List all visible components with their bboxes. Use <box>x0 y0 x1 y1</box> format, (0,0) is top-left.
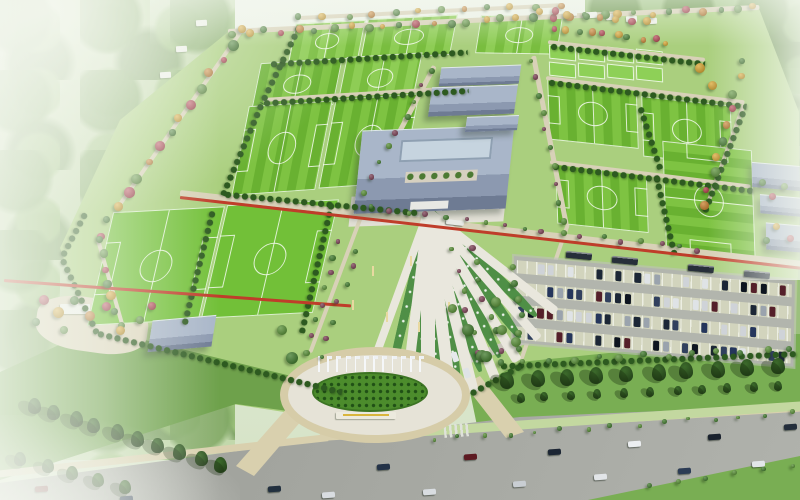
tree <box>682 6 690 14</box>
car <box>628 441 641 448</box>
parked-car <box>654 296 660 307</box>
tree <box>102 267 108 273</box>
tree <box>695 63 705 73</box>
parked-car <box>557 287 563 298</box>
parked-car <box>663 341 669 352</box>
mini-pitch <box>578 63 605 80</box>
tree <box>53 307 64 318</box>
parked-car <box>547 287 553 298</box>
tree <box>761 467 766 472</box>
tree <box>607 423 611 427</box>
tree <box>462 288 467 293</box>
tree <box>148 302 156 310</box>
conifer-tree <box>589 367 603 384</box>
tree <box>497 325 507 335</box>
conifer-tree <box>674 386 682 396</box>
parked-car <box>624 315 630 326</box>
tree <box>666 8 673 15</box>
tree <box>640 351 646 357</box>
tree <box>643 17 651 25</box>
parked-car <box>663 297 669 308</box>
tree <box>515 296 522 303</box>
parked-car <box>750 304 756 315</box>
tree <box>556 200 562 206</box>
tree <box>100 249 109 258</box>
tree <box>562 26 569 33</box>
tree <box>491 297 501 307</box>
tree <box>700 201 708 209</box>
parked-car <box>702 278 708 289</box>
parked-car <box>654 274 660 285</box>
garden-pavilion <box>176 46 187 53</box>
tree <box>329 255 336 262</box>
conifer-tree <box>593 389 601 399</box>
tree <box>599 30 605 36</box>
tree <box>320 303 325 308</box>
tree <box>368 11 375 18</box>
conifer-tree <box>92 473 104 487</box>
penalty-box <box>548 95 561 124</box>
flagpole <box>373 356 375 372</box>
tree <box>345 282 350 287</box>
flagpole <box>336 356 338 372</box>
conifer-tree <box>679 362 693 379</box>
tree <box>699 8 707 16</box>
tree <box>85 311 95 321</box>
conifer-tree <box>531 370 545 387</box>
tree <box>719 7 725 13</box>
flagpole <box>410 356 412 372</box>
tree <box>311 28 317 34</box>
light-pole <box>372 266 374 276</box>
parked-car <box>635 272 641 283</box>
parked-car <box>605 292 611 303</box>
car <box>377 464 390 471</box>
tree <box>712 153 720 161</box>
parked-car <box>683 276 689 287</box>
parked-car <box>614 337 620 348</box>
tree <box>448 20 456 28</box>
tree <box>769 193 776 200</box>
roof-garden <box>405 169 478 183</box>
car <box>268 486 281 493</box>
tree <box>711 167 720 176</box>
parked-car <box>673 320 679 331</box>
conifer-tree <box>723 383 731 393</box>
tree <box>498 359 505 366</box>
tree <box>70 296 79 305</box>
conifer-tree <box>119 480 131 494</box>
tree <box>111 308 118 315</box>
tree <box>481 351 492 362</box>
parked-car <box>586 312 592 323</box>
conifer-tree <box>620 388 628 398</box>
tree <box>533 431 536 434</box>
tree <box>479 296 484 301</box>
tree <box>615 31 623 39</box>
conifer-tree <box>774 381 782 391</box>
parked-car <box>548 264 554 275</box>
parked-car <box>605 314 611 325</box>
tree <box>552 7 560 15</box>
tree <box>448 304 457 313</box>
tree <box>369 204 373 208</box>
parked-car <box>538 264 544 275</box>
tree <box>228 40 239 51</box>
tree <box>589 28 597 36</box>
conifer-tree <box>711 361 725 378</box>
tree <box>511 337 521 347</box>
tree <box>103 280 112 289</box>
parked-car <box>682 342 688 353</box>
tree <box>469 245 475 251</box>
tree <box>558 3 564 9</box>
flagpole <box>382 356 384 372</box>
parked-car <box>673 298 679 309</box>
parked-car <box>595 313 601 324</box>
tree <box>330 320 336 326</box>
tree <box>786 346 792 352</box>
conifer-tree <box>771 358 785 375</box>
tree <box>749 3 756 10</box>
tree <box>708 81 717 90</box>
tree <box>309 333 314 338</box>
tree <box>174 114 182 122</box>
car <box>594 474 607 481</box>
parked-car <box>712 301 718 312</box>
tree <box>476 278 481 283</box>
skylight <box>399 137 493 162</box>
parked-car <box>644 273 650 284</box>
tree <box>449 247 453 251</box>
tree <box>347 14 353 20</box>
light-pole <box>352 300 354 310</box>
tree <box>155 141 165 151</box>
parked-car <box>624 337 630 348</box>
tree <box>529 13 538 22</box>
tree <box>323 336 328 341</box>
tree <box>361 190 367 196</box>
tree <box>484 4 490 10</box>
tree <box>433 438 437 442</box>
training-building <box>752 162 800 191</box>
tree <box>39 295 49 305</box>
garden-pavilion <box>196 20 207 27</box>
tree <box>336 239 341 244</box>
car <box>513 481 526 488</box>
conifer-tree <box>87 418 100 434</box>
tree <box>396 22 401 27</box>
tree <box>318 13 326 21</box>
parked-car <box>780 285 786 296</box>
parked-car <box>596 291 602 302</box>
tree <box>462 6 468 12</box>
car <box>784 424 797 431</box>
parked-car <box>692 299 698 310</box>
tree <box>677 244 681 248</box>
training-building <box>760 194 800 217</box>
tree <box>462 307 468 313</box>
parked-car <box>653 340 659 351</box>
parked-car <box>576 289 582 300</box>
parked-car <box>644 317 650 328</box>
flagpole <box>346 356 348 372</box>
conifer-tree <box>652 364 666 381</box>
parked-car <box>722 280 728 291</box>
parked-car <box>567 288 573 299</box>
tree <box>349 22 355 28</box>
tree <box>571 357 578 364</box>
light-pole <box>418 322 420 332</box>
parked-car <box>750 326 756 337</box>
tree <box>462 324 474 336</box>
tree <box>773 223 780 230</box>
car <box>548 449 561 456</box>
flagpole <box>392 356 394 372</box>
tree <box>489 314 495 320</box>
parked-car <box>615 270 621 281</box>
tree <box>313 317 318 322</box>
parked-car <box>566 332 572 343</box>
tree <box>759 179 766 186</box>
mini-pitch <box>636 65 663 82</box>
tree <box>638 238 644 244</box>
parked-car <box>779 329 785 340</box>
parked-car <box>634 316 640 327</box>
parked-car <box>740 325 746 336</box>
conifer-tree <box>646 387 654 397</box>
tree <box>32 318 40 326</box>
tree <box>628 18 636 26</box>
flagpole <box>419 356 421 372</box>
flagpole <box>355 356 357 372</box>
tree <box>686 417 689 420</box>
conifer-tree <box>517 393 525 403</box>
training-building <box>439 65 522 87</box>
tree <box>277 325 287 335</box>
flagpole <box>364 356 366 372</box>
conifer-tree <box>698 385 706 395</box>
aerial-rendering <box>0 0 800 500</box>
conifer-tree <box>47 405 60 421</box>
tree <box>351 263 356 268</box>
tree <box>787 235 794 242</box>
flagpole <box>401 356 403 372</box>
tree <box>550 14 557 21</box>
tree <box>694 248 700 254</box>
tree <box>641 37 647 43</box>
tree <box>136 316 144 324</box>
parked-car <box>556 331 562 342</box>
tree <box>519 312 525 318</box>
tree <box>114 202 123 211</box>
tree <box>563 11 571 19</box>
tree <box>484 16 491 23</box>
conifer-tree <box>750 382 758 392</box>
light-pole <box>410 256 412 266</box>
tree <box>169 129 175 135</box>
tree <box>660 241 665 246</box>
tree <box>587 427 592 432</box>
flagpole <box>327 356 329 372</box>
tree <box>422 211 428 217</box>
tree <box>365 24 373 32</box>
conifer-tree <box>173 444 186 460</box>
parked-car <box>537 308 543 319</box>
tree <box>102 302 111 311</box>
parked-car <box>625 293 631 304</box>
tree <box>638 424 642 428</box>
conifer-tree <box>66 466 78 480</box>
tree <box>438 6 444 12</box>
tree <box>515 330 521 336</box>
parked-car <box>615 292 621 303</box>
parked-car <box>595 335 601 346</box>
penalty-box <box>635 187 649 216</box>
tree <box>278 30 284 36</box>
tree <box>561 218 567 224</box>
tree <box>597 14 604 21</box>
conifer-tree <box>42 459 54 473</box>
parked-car <box>760 283 766 294</box>
tree <box>703 476 708 481</box>
parked-car <box>557 309 563 320</box>
car <box>423 489 436 496</box>
parked-car <box>760 305 766 316</box>
tree <box>631 10 636 15</box>
tree <box>763 237 770 244</box>
training-building <box>766 222 800 252</box>
tree <box>60 326 68 334</box>
parked-car <box>751 282 757 293</box>
tree <box>328 270 333 275</box>
conifer-tree <box>740 359 754 376</box>
parked-car <box>596 269 602 280</box>
training-building <box>465 115 519 132</box>
tree <box>703 187 709 193</box>
tree <box>536 93 542 99</box>
tree <box>386 143 391 148</box>
conifer-tree <box>619 366 633 383</box>
tree <box>96 236 103 243</box>
parked-car <box>576 311 582 322</box>
parked-car <box>663 319 669 330</box>
tree <box>228 31 235 38</box>
parked-car <box>741 281 747 292</box>
tree <box>443 215 448 220</box>
tree <box>781 183 788 190</box>
entrance-sign <box>336 412 396 419</box>
car <box>322 492 335 499</box>
main-building <box>354 125 515 214</box>
flagpole <box>318 356 320 372</box>
tree <box>116 326 125 335</box>
car <box>708 434 721 441</box>
parked-car <box>567 266 573 277</box>
parked-car <box>566 310 572 321</box>
tree <box>723 121 731 129</box>
tree <box>509 433 513 437</box>
tree <box>392 130 398 136</box>
parked-car <box>721 324 727 335</box>
tree <box>729 105 736 112</box>
tree <box>618 239 623 244</box>
tree <box>412 100 416 104</box>
tree <box>124 187 135 198</box>
parked-car <box>770 306 776 317</box>
parked-car <box>702 300 708 311</box>
tree <box>405 114 410 119</box>
parked-car <box>731 303 737 314</box>
parked-car <box>702 322 708 333</box>
tree <box>483 433 487 437</box>
conifer-tree <box>214 457 227 473</box>
car <box>678 468 691 475</box>
tree <box>734 5 742 13</box>
tree <box>738 73 744 79</box>
tree <box>106 291 116 301</box>
tree <box>790 409 795 414</box>
tree <box>415 8 421 14</box>
tree <box>393 9 400 16</box>
tree <box>557 426 562 431</box>
tree <box>286 352 298 364</box>
conifer-tree <box>560 369 574 386</box>
tree <box>552 163 558 169</box>
tree <box>197 84 207 94</box>
tree <box>238 25 246 33</box>
light-pole <box>386 312 388 322</box>
tree <box>615 354 623 362</box>
tree <box>666 354 672 360</box>
garden-pavilion <box>160 72 171 79</box>
tree <box>499 348 504 353</box>
tree <box>548 145 553 150</box>
car <box>464 454 477 461</box>
entrance-sign-text-band <box>343 414 389 416</box>
car <box>35 486 48 493</box>
conifer-tree <box>14 452 26 466</box>
tree <box>131 174 142 185</box>
tree <box>474 259 480 265</box>
tree <box>662 419 667 424</box>
